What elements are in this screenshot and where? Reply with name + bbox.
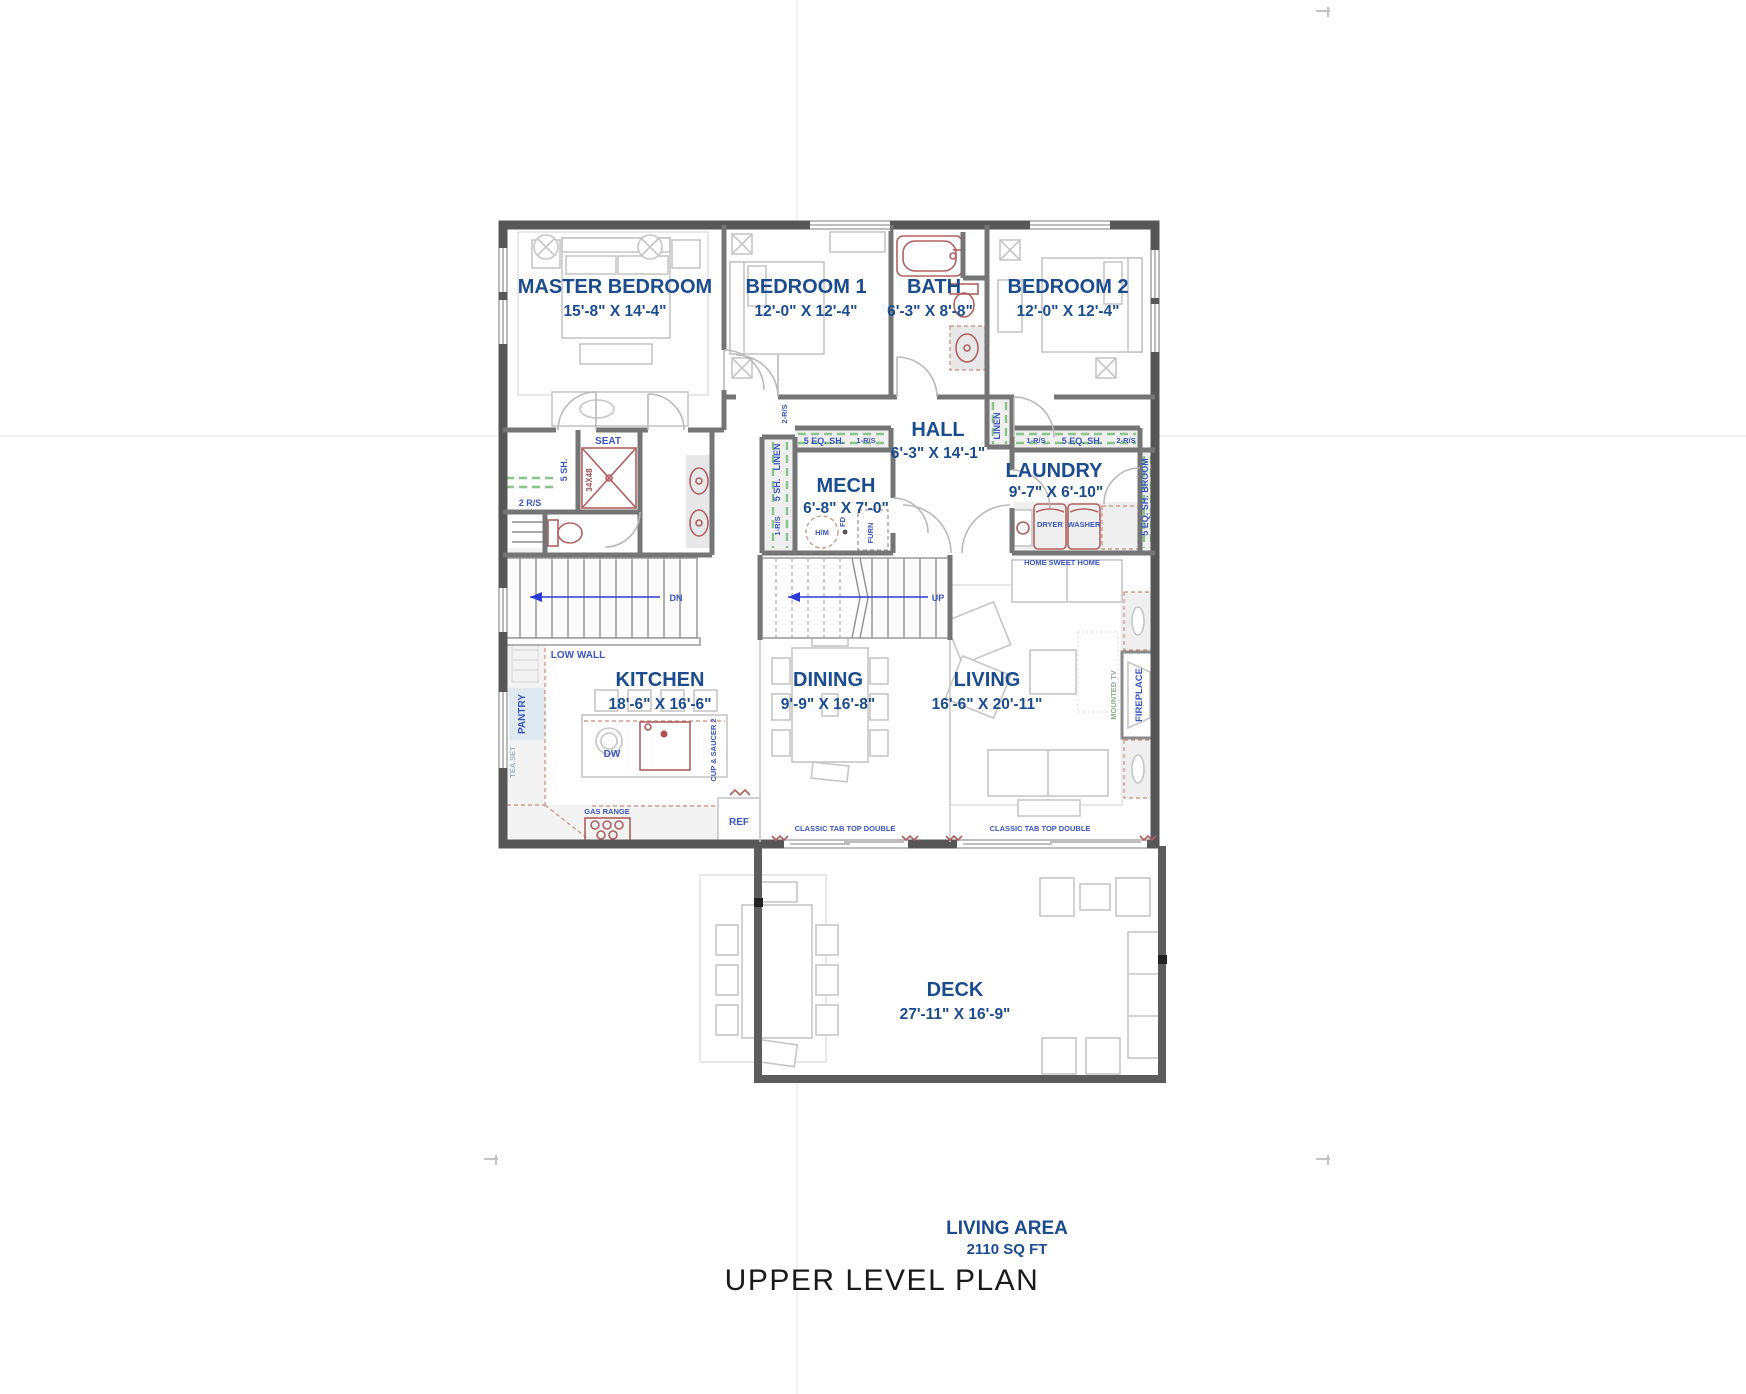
laundry-dims: 9'-7" X 6'-10" bbox=[1009, 484, 1103, 501]
plan-title: UPPER LEVEL PLAN bbox=[725, 1264, 1040, 1297]
floor-drain-label: FD bbox=[838, 516, 847, 527]
rod-shelf-1rs-label-3: 1-R/S bbox=[1026, 436, 1045, 445]
master-bedroom-dims: 15'-8" X 14'-4" bbox=[563, 303, 666, 320]
door-style-label-2: CLASSIC TAB TOP DOUBLE bbox=[990, 824, 1091, 833]
ref-label: REF bbox=[729, 817, 749, 828]
kitchen-dims: 18'-6" X 16'-6" bbox=[608, 696, 711, 713]
rod-shelf-2rs-label-2: 2-R/S bbox=[1116, 436, 1135, 445]
living-label: LIVING bbox=[954, 669, 1021, 691]
mounted-tv-label: MOUNTED TV bbox=[1109, 670, 1118, 720]
laundry-label: LAUNDRY bbox=[1005, 460, 1103, 482]
living-dims: 16'-6" X 20'-11" bbox=[932, 696, 1043, 713]
doormat-label: HOME SWEET HOME bbox=[1024, 558, 1100, 567]
deck-chair bbox=[1040, 878, 1074, 916]
window-top-1 bbox=[810, 219, 890, 231]
gas-range-label: GAS RANGE bbox=[584, 807, 629, 816]
deck-table bbox=[742, 905, 812, 1038]
sliding-door-living bbox=[957, 838, 1147, 850]
hall-linen-label: LINEN bbox=[992, 413, 1002, 440]
furnace-label: FURN bbox=[866, 523, 875, 544]
window-left-1 bbox=[497, 248, 509, 292]
dishwasher-label: DW bbox=[604, 749, 621, 760]
mech-label: MECH bbox=[817, 475, 876, 497]
kitchen-label: KITCHEN bbox=[616, 669, 705, 691]
pantry-label: PANTRY bbox=[517, 694, 528, 734]
nightstand bbox=[672, 240, 700, 268]
bedroom1-label: BEDROOM 1 bbox=[745, 276, 866, 298]
rod-shelf-2rs-label: 2-R/S bbox=[780, 404, 789, 423]
window-right-1 bbox=[1149, 250, 1161, 298]
sliding-door-dining bbox=[784, 838, 908, 850]
stairs-down-label: DN bbox=[670, 593, 683, 603]
coffee-table bbox=[1030, 650, 1076, 694]
window-left-3 bbox=[497, 588, 509, 632]
deck-sectional bbox=[1128, 932, 1162, 1058]
bath-label: BATH bbox=[907, 276, 961, 298]
eq-shelves-label-2: 5 EQ. SH. bbox=[1062, 436, 1103, 446]
deck-label: DECK bbox=[927, 979, 984, 1001]
bedroom1-dresser bbox=[830, 232, 885, 252]
dining-label: DINING bbox=[793, 669, 863, 691]
low-wall bbox=[503, 638, 700, 645]
fireplace-label: FIREPLACE bbox=[1134, 668, 1145, 722]
hall-dims: 6'-3" X 14'-1" bbox=[891, 445, 985, 462]
console bbox=[1018, 800, 1080, 816]
hot-water-label: H/M bbox=[815, 528, 829, 537]
floor-plan-canvas: MASTER BEDROOM 15'-8" X 14'-4" BEDROOM 1… bbox=[0, 0, 1746, 1394]
washer-label: WASHER bbox=[1068, 520, 1102, 529]
footer: LIVING AREA 2110 SQ FT UPPER LEVEL PLAN bbox=[725, 1218, 1068, 1297]
low-wall-label: LOW WALL bbox=[551, 650, 605, 661]
seat-label: SEAT bbox=[595, 436, 621, 447]
eq-shelves-label: 5 EQ. SH. bbox=[804, 436, 845, 446]
rod-shelf-1rs-label-2: 1-R/S bbox=[856, 436, 875, 445]
deck-dims: 27'-11" X 16'-9" bbox=[900, 1006, 1011, 1023]
bed-bench bbox=[580, 344, 652, 364]
tea-set-label: TEA SET bbox=[508, 746, 517, 778]
window-right-2 bbox=[1149, 304, 1161, 352]
stairs-up-label: UP bbox=[932, 593, 945, 603]
floor-plan-page: MASTER BEDROOM 15'-8" X 14'-4" BEDROOM 1… bbox=[0, 0, 1746, 1394]
living-area-title: LIVING AREA bbox=[946, 1218, 1068, 1239]
master-bedroom-label: MASTER BEDROOM bbox=[518, 276, 712, 298]
window-left-2 bbox=[497, 300, 509, 344]
rod-shelf-1rs-label: 1-R/S bbox=[773, 516, 782, 535]
broom-closet-label: 5 EQ. SH. BROOM bbox=[1140, 458, 1150, 536]
bedroom2-label: BEDROOM 2 bbox=[1007, 276, 1128, 298]
bedroom2-dims: 12'-0" X 12'-4" bbox=[1016, 303, 1119, 320]
shower-size-label: 34X48 bbox=[585, 468, 594, 492]
mech-dims: 6'-8" X 7'-0" bbox=[803, 500, 889, 517]
bath-dims: 6'-3" X 8'-8" bbox=[887, 303, 973, 320]
linen-label: LINEN bbox=[772, 444, 782, 471]
hall-label: HALL bbox=[911, 419, 964, 441]
shelf-5sh-label-2: 5 SH. bbox=[772, 479, 782, 502]
bedroom1-dims: 12'-0" X 12'-4" bbox=[754, 303, 857, 320]
master-dresser bbox=[552, 392, 688, 426]
rod-shelf-label: 2 R/S bbox=[519, 498, 542, 508]
dryer-label: DRYER bbox=[1037, 520, 1064, 529]
cup-saucer-label: CUP & SAUCER 2 bbox=[709, 718, 718, 781]
living-area-sqft: 2110 SQ FT bbox=[967, 1241, 1048, 1258]
door-style-label: CLASSIC TAB TOP DOUBLE bbox=[795, 824, 896, 833]
floor-drain bbox=[843, 530, 848, 535]
dining-dims: 9'-9" X 16'-8" bbox=[781, 696, 875, 713]
shelf-5sh-label: 5 SH. bbox=[559, 459, 569, 482]
window-top-2 bbox=[1030, 219, 1110, 231]
